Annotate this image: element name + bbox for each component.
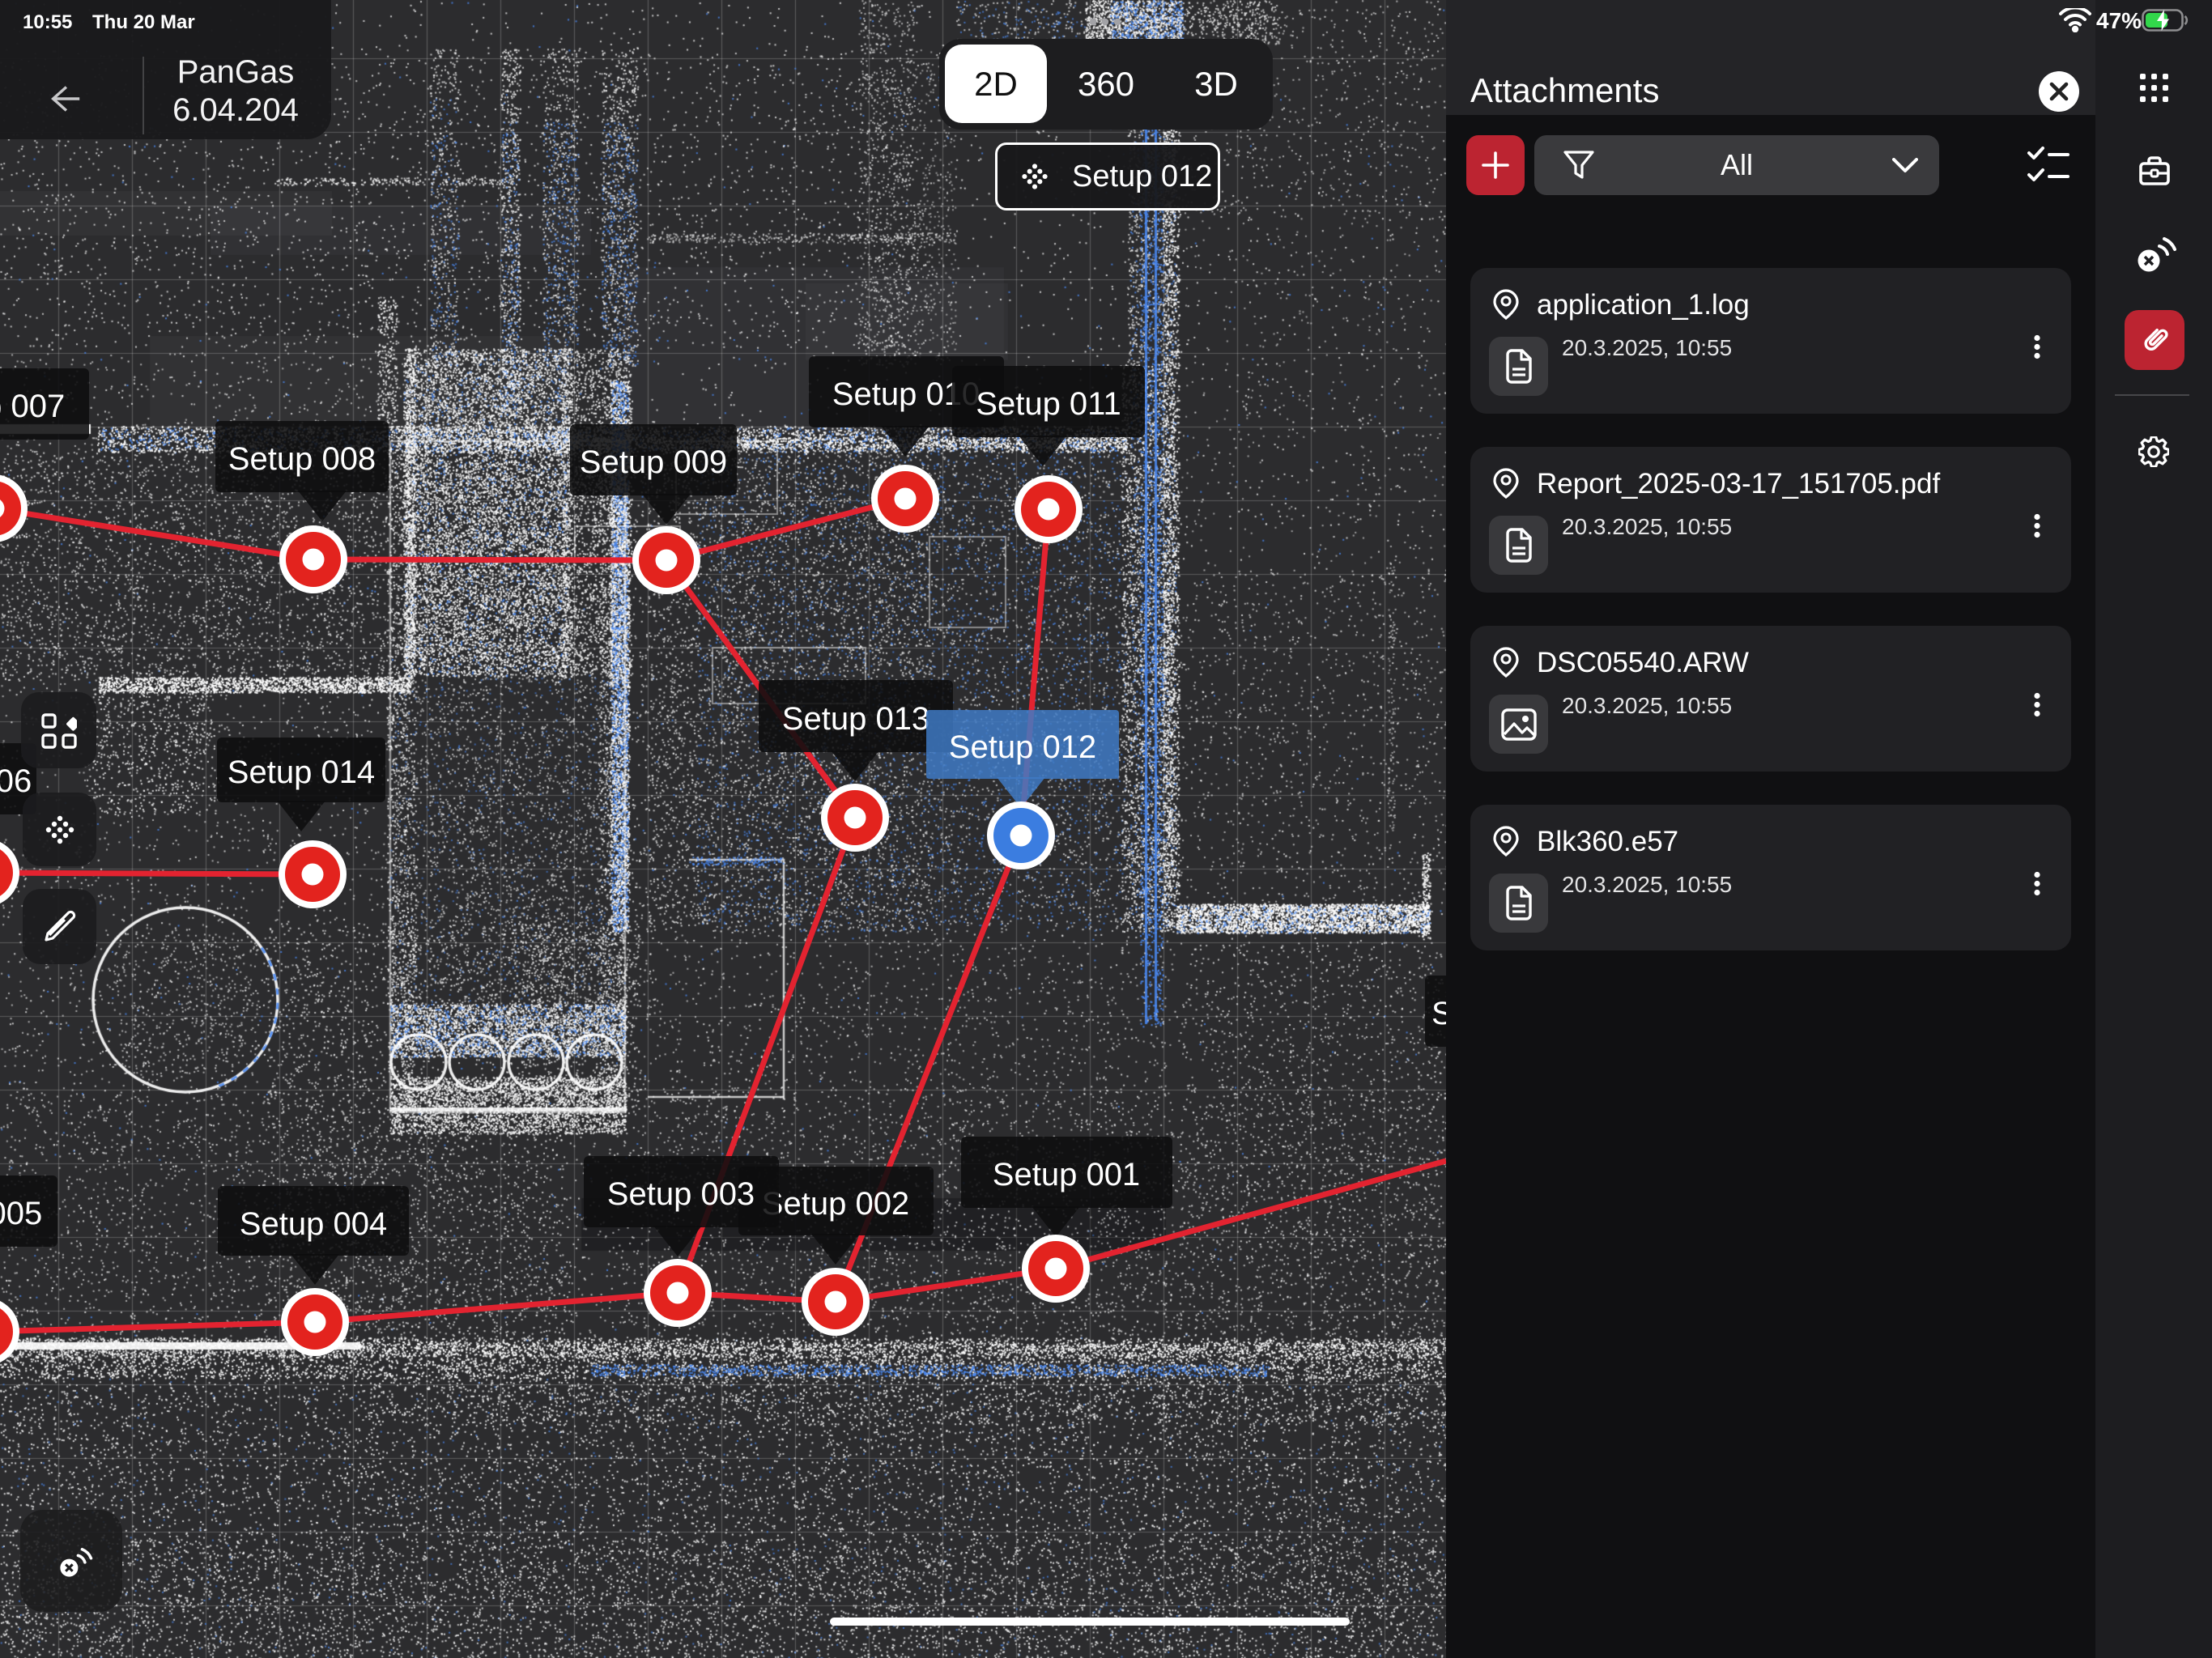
svg-text:Setup 006: Setup 006 [0,763,32,799]
svg-text:Setup 009: Setup 009 [580,444,727,480]
svg-text:Setup 014: Setup 014 [228,755,375,790]
svg-text:Setup 002: Setup 002 [762,1186,909,1222]
svg-text:Setup 011: Setup 011 [976,386,1121,422]
svg-text:Setup 005: Setup 005 [0,1196,42,1231]
svg-text:Setup 003: Setup 003 [607,1176,755,1212]
svg-text:Setup 008: Setup 008 [228,441,376,477]
svg-text:S: S [1431,996,1446,1031]
svg-text:Setup 001: Setup 001 [993,1157,1140,1192]
svg-text:Setup 013: Setup 013 [782,701,929,737]
svg-text:Setup 012: Setup 012 [949,729,1096,765]
svg-text:Setup 004: Setup 004 [240,1206,387,1242]
svg-text:Setup 007: Setup 007 [0,389,65,424]
